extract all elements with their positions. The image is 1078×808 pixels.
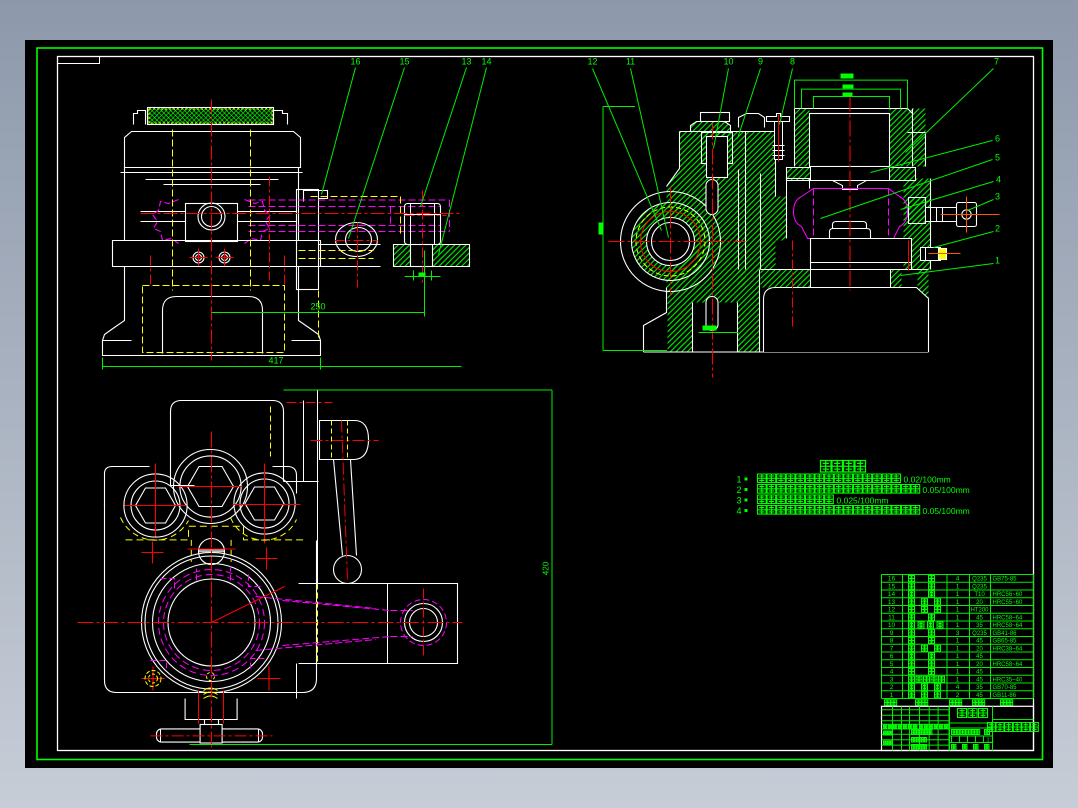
svg-text:1: 1 (956, 583, 960, 590)
svg-text:3: 3 (956, 630, 960, 637)
svg-text:6: 6 (890, 653, 894, 660)
svg-text:GB11-86: GB11-86 (993, 693, 1017, 699)
svg-text:16: 16 (350, 57, 360, 67)
svg-text:1: 1 (956, 599, 960, 606)
svg-text:3: 3 (890, 676, 894, 683)
svg-text:HRC38~64: HRC38~64 (993, 646, 1024, 652)
svg-text:HT200: HT200 (970, 608, 989, 614)
svg-text:Q235: Q235 (972, 584, 987, 590)
svg-text:1: 1 (956, 676, 960, 683)
svg-text:15: 15 (888, 583, 896, 590)
svg-text:3: 3 (737, 496, 742, 506)
svg-text:1: 1 (995, 256, 1000, 266)
svg-text:GB70-85: GB70-85 (993, 685, 1018, 691)
svg-text:9: 9 (890, 630, 894, 637)
svg-text:0.025/100mm: 0.025/100mm (837, 496, 889, 506)
svg-text:35: 35 (976, 685, 983, 691)
svg-text:14: 14 (888, 591, 896, 598)
svg-text:45: 45 (976, 670, 983, 676)
svg-text:16: 16 (888, 576, 896, 583)
svg-text:12: 12 (587, 57, 597, 67)
svg-text:7: 7 (890, 645, 894, 652)
svg-text:4: 4 (996, 175, 1001, 185)
svg-text:1: 1 (956, 653, 960, 660)
svg-text:1: 1 (956, 591, 960, 598)
svg-text:10: 10 (723, 57, 733, 67)
svg-text:7: 7 (994, 57, 999, 67)
svg-text:4: 4 (737, 506, 742, 516)
svg-text:2: 2 (995, 224, 1000, 234)
svg-text:0.05/100mm: 0.05/100mm (923, 485, 970, 495)
svg-text:HRC56~60: HRC56~60 (993, 592, 1024, 598)
svg-text:GB65-85: GB65-85 (993, 639, 1018, 645)
svg-text:1: 1 (956, 669, 960, 676)
svg-text:9: 9 (758, 57, 763, 67)
svg-text:1:1: 1:1 (987, 738, 995, 744)
svg-text:0.02/100mm: 0.02/100mm (904, 475, 951, 485)
svg-text:420: 420 (542, 561, 551, 575)
svg-text:HRC58~64: HRC58~64 (993, 662, 1024, 668)
svg-text:1: 1 (956, 638, 960, 645)
svg-text:2: 2 (890, 684, 894, 691)
svg-text:35: 35 (976, 623, 983, 629)
svg-text:5: 5 (995, 153, 1000, 163)
svg-text:1: 1 (956, 661, 960, 668)
svg-text:45: 45 (976, 639, 983, 645)
svg-text:45: 45 (976, 615, 983, 621)
svg-text:20: 20 (976, 662, 983, 668)
svg-text:Q235: Q235 (972, 631, 987, 637)
svg-text:T10: T10 (974, 592, 985, 598)
svg-text:11: 11 (626, 57, 635, 67)
svg-text:1: 1 (890, 692, 894, 699)
svg-text:14: 14 (481, 57, 491, 67)
svg-text:1: 1 (737, 475, 742, 485)
svg-text:417: 417 (269, 356, 284, 366)
svg-text:20: 20 (976, 646, 983, 652)
svg-text:1: 1 (956, 645, 960, 652)
svg-text:1: 1 (956, 607, 960, 614)
svg-text:13: 13 (461, 57, 471, 67)
svg-text:5: 5 (890, 661, 894, 668)
svg-text:15: 15 (399, 57, 409, 67)
svg-text:GB75-85: GB75-85 (993, 577, 1018, 583)
svg-text:12: 12 (888, 607, 896, 614)
svg-text:10: 10 (888, 622, 896, 629)
svg-text:45: 45 (976, 677, 983, 683)
svg-text:6: 6 (995, 134, 1000, 144)
svg-text:0.05/100mm: 0.05/100mm (923, 506, 970, 516)
svg-text:11: 11 (888, 614, 895, 621)
svg-text:8: 8 (790, 57, 795, 67)
svg-text:3: 3 (995, 192, 1000, 202)
svg-text:4: 4 (956, 576, 960, 583)
svg-text:1: 1 (956, 622, 960, 629)
svg-text:HRC35~40: HRC35~40 (993, 677, 1024, 683)
svg-text:45: 45 (976, 654, 983, 660)
svg-text:GB41-86: GB41-86 (993, 631, 1018, 637)
svg-text:20: 20 (976, 600, 983, 606)
svg-text:HRC55~60: HRC55~60 (993, 600, 1024, 606)
svg-text:2: 2 (956, 692, 960, 699)
svg-text:1: 1 (956, 614, 960, 621)
svg-text:HRC58~64: HRC58~64 (993, 623, 1024, 629)
svg-text:2: 2 (737, 485, 742, 495)
svg-text:45: 45 (976, 693, 983, 699)
svg-text:250: 250 (311, 302, 326, 312)
svg-text:HRC58~64: HRC58~64 (993, 615, 1024, 621)
svg-text:Q235: Q235 (972, 577, 987, 583)
svg-text:8: 8 (890, 638, 894, 645)
svg-text:13: 13 (888, 599, 896, 606)
svg-text:4: 4 (956, 684, 960, 691)
svg-text:4: 4 (890, 669, 894, 676)
